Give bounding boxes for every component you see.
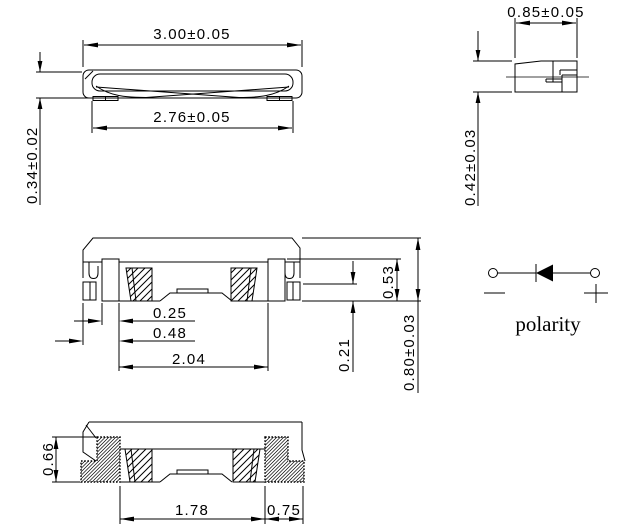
- bottom-resin-hatch-right: [233, 449, 260, 482]
- dim-label-total-height: 0.80±0.03: [401, 314, 418, 391]
- dim-label-top-width: 3.00±0.05: [153, 26, 230, 43]
- bottom-resin-hatch-left: [125, 449, 152, 482]
- technical-drawing-svg: 3.00±0.05 2.76±0.05 0.34±0.02 0.85±0.05: [0, 0, 625, 529]
- dim-label-pad-width: 0.75: [267, 502, 301, 519]
- polarity-label: polarity: [515, 312, 581, 336]
- dim-label-side-height: 0.42±0.03: [462, 129, 479, 206]
- dim-label-cavity-height: 0.53: [380, 265, 397, 299]
- resin-hatch-left: [126, 268, 152, 301]
- dim-label-standoff: 0.21: [336, 338, 353, 372]
- dim-label-edge-to-lead: 0.48: [153, 325, 187, 342]
- background: [0, 0, 625, 529]
- dim-label-lead-span: 2.04: [172, 351, 206, 368]
- dim-label-top-thickness: 0.34±0.02: [24, 127, 41, 204]
- dim-label-side-width: 0.85±0.05: [507, 4, 584, 21]
- resin-hatch-right: [231, 268, 257, 301]
- dim-label-lead-width: 0.25: [153, 305, 187, 322]
- dim-label-pad-span: 1.78: [175, 502, 209, 519]
- dim-label-top-inner-width: 2.76±0.05: [153, 109, 230, 126]
- dim-label-terminal-height: 0.66: [40, 442, 57, 476]
- package-outline-drawing: 3.00±0.05 2.76±0.05 0.34±0.02 0.85±0.05: [0, 0, 625, 529]
